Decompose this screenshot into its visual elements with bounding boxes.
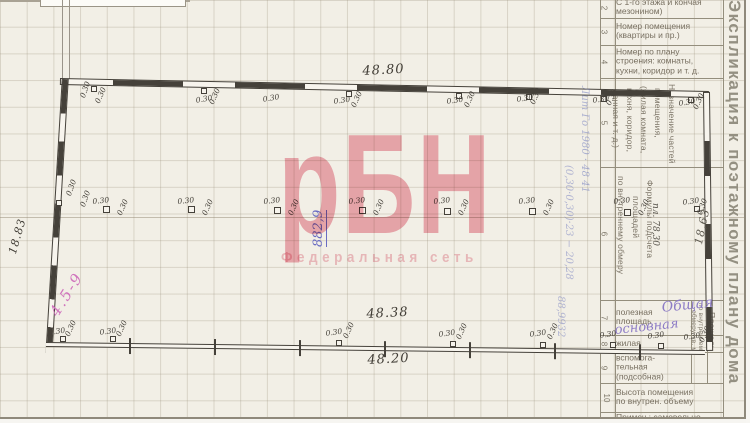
- handwritten-note: Лит Го 1980 · 48 41: [579, 86, 590, 261]
- column-square: [624, 209, 631, 216]
- row-label: Высота помещения по внутрен. объему: [616, 388, 718, 408]
- table-row: 4 Номер по плану строения: комнаты, кухн…: [600, 45, 723, 78]
- dimension-label-030: 0.30: [200, 198, 215, 217]
- dimension-label-030: 0.30: [207, 87, 222, 106]
- dimension-label-030: 0.30: [545, 322, 560, 341]
- dimension-label-030: 0.30: [177, 195, 195, 206]
- dimension-label-030: 0.30: [78, 189, 92, 208]
- column-square: [346, 91, 352, 97]
- column-square: [91, 86, 97, 92]
- dimension-label: 48.80: [362, 62, 405, 79]
- plan-top-wall: [60, 78, 709, 98]
- column-square: [694, 206, 700, 212]
- dimension-label: 18.83: [6, 217, 29, 256]
- column-square: [601, 96, 607, 102]
- plan-bottom-wall: [46, 342, 705, 355]
- column-square: [688, 97, 694, 103]
- row-number: 6: [600, 231, 609, 235]
- column-square: [188, 206, 195, 213]
- dimension-extension-line: [62, 0, 63, 80]
- dimension-label-030: 0.30: [63, 319, 78, 338]
- rotated-header-text: Формулы подсчета: [645, 180, 655, 258]
- dimension-label-030: 0.30: [438, 328, 456, 339]
- dimension-label-030: 0.30: [518, 195, 536, 206]
- dimension-label-030: 0.30: [262, 92, 280, 104]
- rotated-header-text: по внутреннему обмеру: [616, 176, 626, 274]
- scan-right-margin: [746, 0, 750, 423]
- table-row: 2 С 1-го этажа и кончая мезонином): [600, 0, 723, 18]
- row-number: 10: [602, 393, 611, 402]
- scan-bottom-margin: [0, 419, 746, 423]
- table-row: 3 Номер помещения (квартиры и пр.): [600, 18, 723, 45]
- plan-left-wall: [46, 78, 69, 344]
- dimension-label-030: 0.30: [114, 319, 129, 338]
- row-label: С 1-го этажа и кончая мезонином): [616, 0, 718, 17]
- row-number: 7: [600, 315, 609, 319]
- dimension-label-030: 0.30: [647, 330, 665, 341]
- area-subcolumn-border: [691, 300, 692, 383]
- table-row-border: [600, 78, 723, 79]
- row-number: 9: [600, 365, 609, 369]
- rotated-header-text: ванная и т. д.): [611, 90, 621, 148]
- row-number: 2: [600, 5, 609, 9]
- table-row-border: [600, 18, 723, 19]
- dimension-label-030: 0.30: [678, 97, 696, 108]
- dimension-label: 48.38: [366, 305, 409, 322]
- dimension-label-030: 0.30: [541, 198, 556, 217]
- explication-vertical-title: Экспликация к поэтажному плану дома: [724, 0, 744, 423]
- row-number: 3: [600, 29, 609, 33]
- rotated-header-text: кухня, коридор,: [625, 88, 635, 152]
- dimension-extension-line: [69, 0, 70, 80]
- handwritten-note: пл. 78,30: [650, 203, 660, 261]
- wall-tick-marks: [46, 337, 705, 361]
- dimension-label-030: 0.30: [529, 328, 547, 339]
- scanned-floor-plan-page: 2 С 1-го этажа и кончая мезонином) 3 Ном…: [0, 0, 750, 423]
- column-square: [103, 206, 110, 213]
- watermark-logo-text: рБН: [278, 114, 492, 256]
- dimension-label-030: 0.30: [64, 178, 78, 197]
- row-label: полезная площадь: [616, 308, 718, 328]
- handwritten-note: (0,30·0,30)·23 − 20,28: [563, 165, 574, 355]
- row-number: 4: [600, 59, 609, 63]
- dimension-label-030: 0.30: [636, 198, 651, 217]
- dimension-label-030: 0.30: [341, 321, 356, 340]
- row-number: 5: [600, 120, 609, 124]
- plan-right-wall: [703, 92, 713, 351]
- table-row-border: [600, 383, 723, 384]
- table-row-border: [600, 412, 723, 413]
- dimension-label-030: 0.30: [454, 322, 469, 341]
- row-label: Номер по плану строения: комнаты, кухни,…: [616, 47, 718, 76]
- column-square: [456, 93, 462, 99]
- table-row: 7 полезная площадь: [600, 300, 723, 335]
- row-label: Номер помещения (квартиры и пр.): [616, 22, 718, 42]
- column-square: [201, 88, 207, 94]
- table-row-border: [600, 335, 723, 336]
- column-square: [529, 208, 536, 215]
- dimension-label-030: 0.30: [93, 86, 108, 105]
- handwritten-note: 88,9932: [555, 296, 566, 376]
- handwritten-note: основная: [614, 316, 679, 338]
- dimension-label-030: 0.30: [325, 327, 343, 338]
- table-row-border: [600, 45, 723, 46]
- dimension-label-030: 0.30: [92, 195, 110, 206]
- dimension-label-030: 0.30: [99, 326, 117, 337]
- table-row: 10 Высота помещения по внутрен. объему: [600, 383, 723, 412]
- column-square: [526, 94, 532, 100]
- watermark-subtitle: Федеральная сеть: [281, 249, 478, 266]
- dimension-label-030: 0.30: [682, 196, 700, 207]
- dimension-label-030: 0.30: [115, 198, 130, 217]
- dimension-label-030: 0.30: [195, 93, 213, 105]
